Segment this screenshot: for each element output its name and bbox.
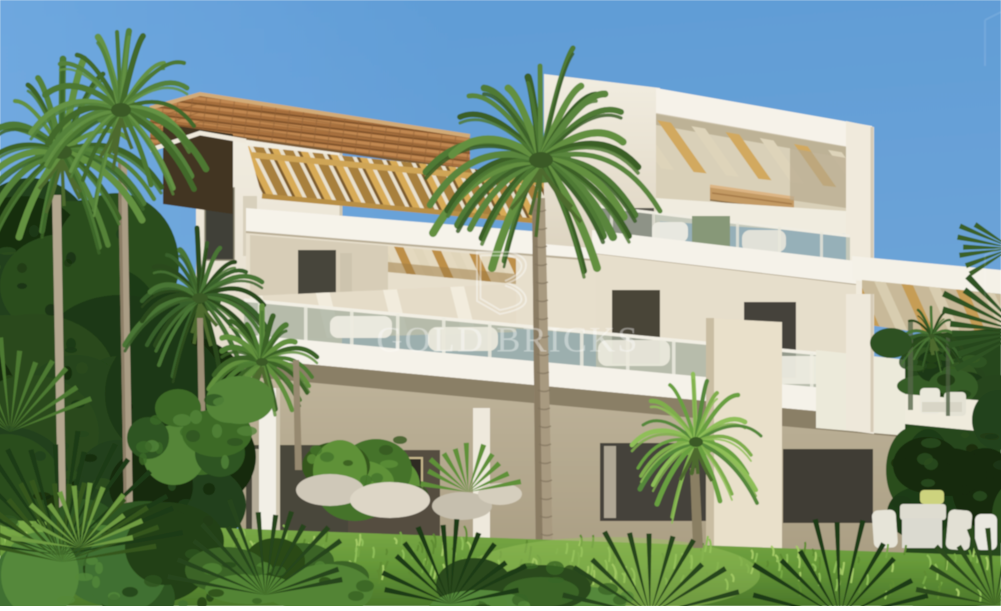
svg-text:GOLD BRICKS: GOLD BRICKS [376, 320, 639, 360]
